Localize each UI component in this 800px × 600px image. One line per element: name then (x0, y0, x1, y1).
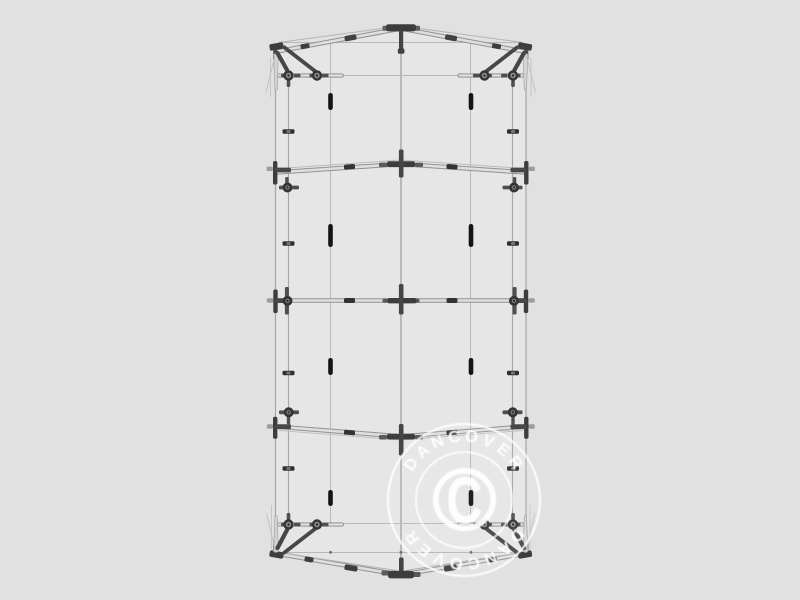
svg-text:O: O (449, 553, 464, 572)
svg-text:C: C (446, 464, 482, 537)
svg-text:O: O (464, 427, 479, 446)
